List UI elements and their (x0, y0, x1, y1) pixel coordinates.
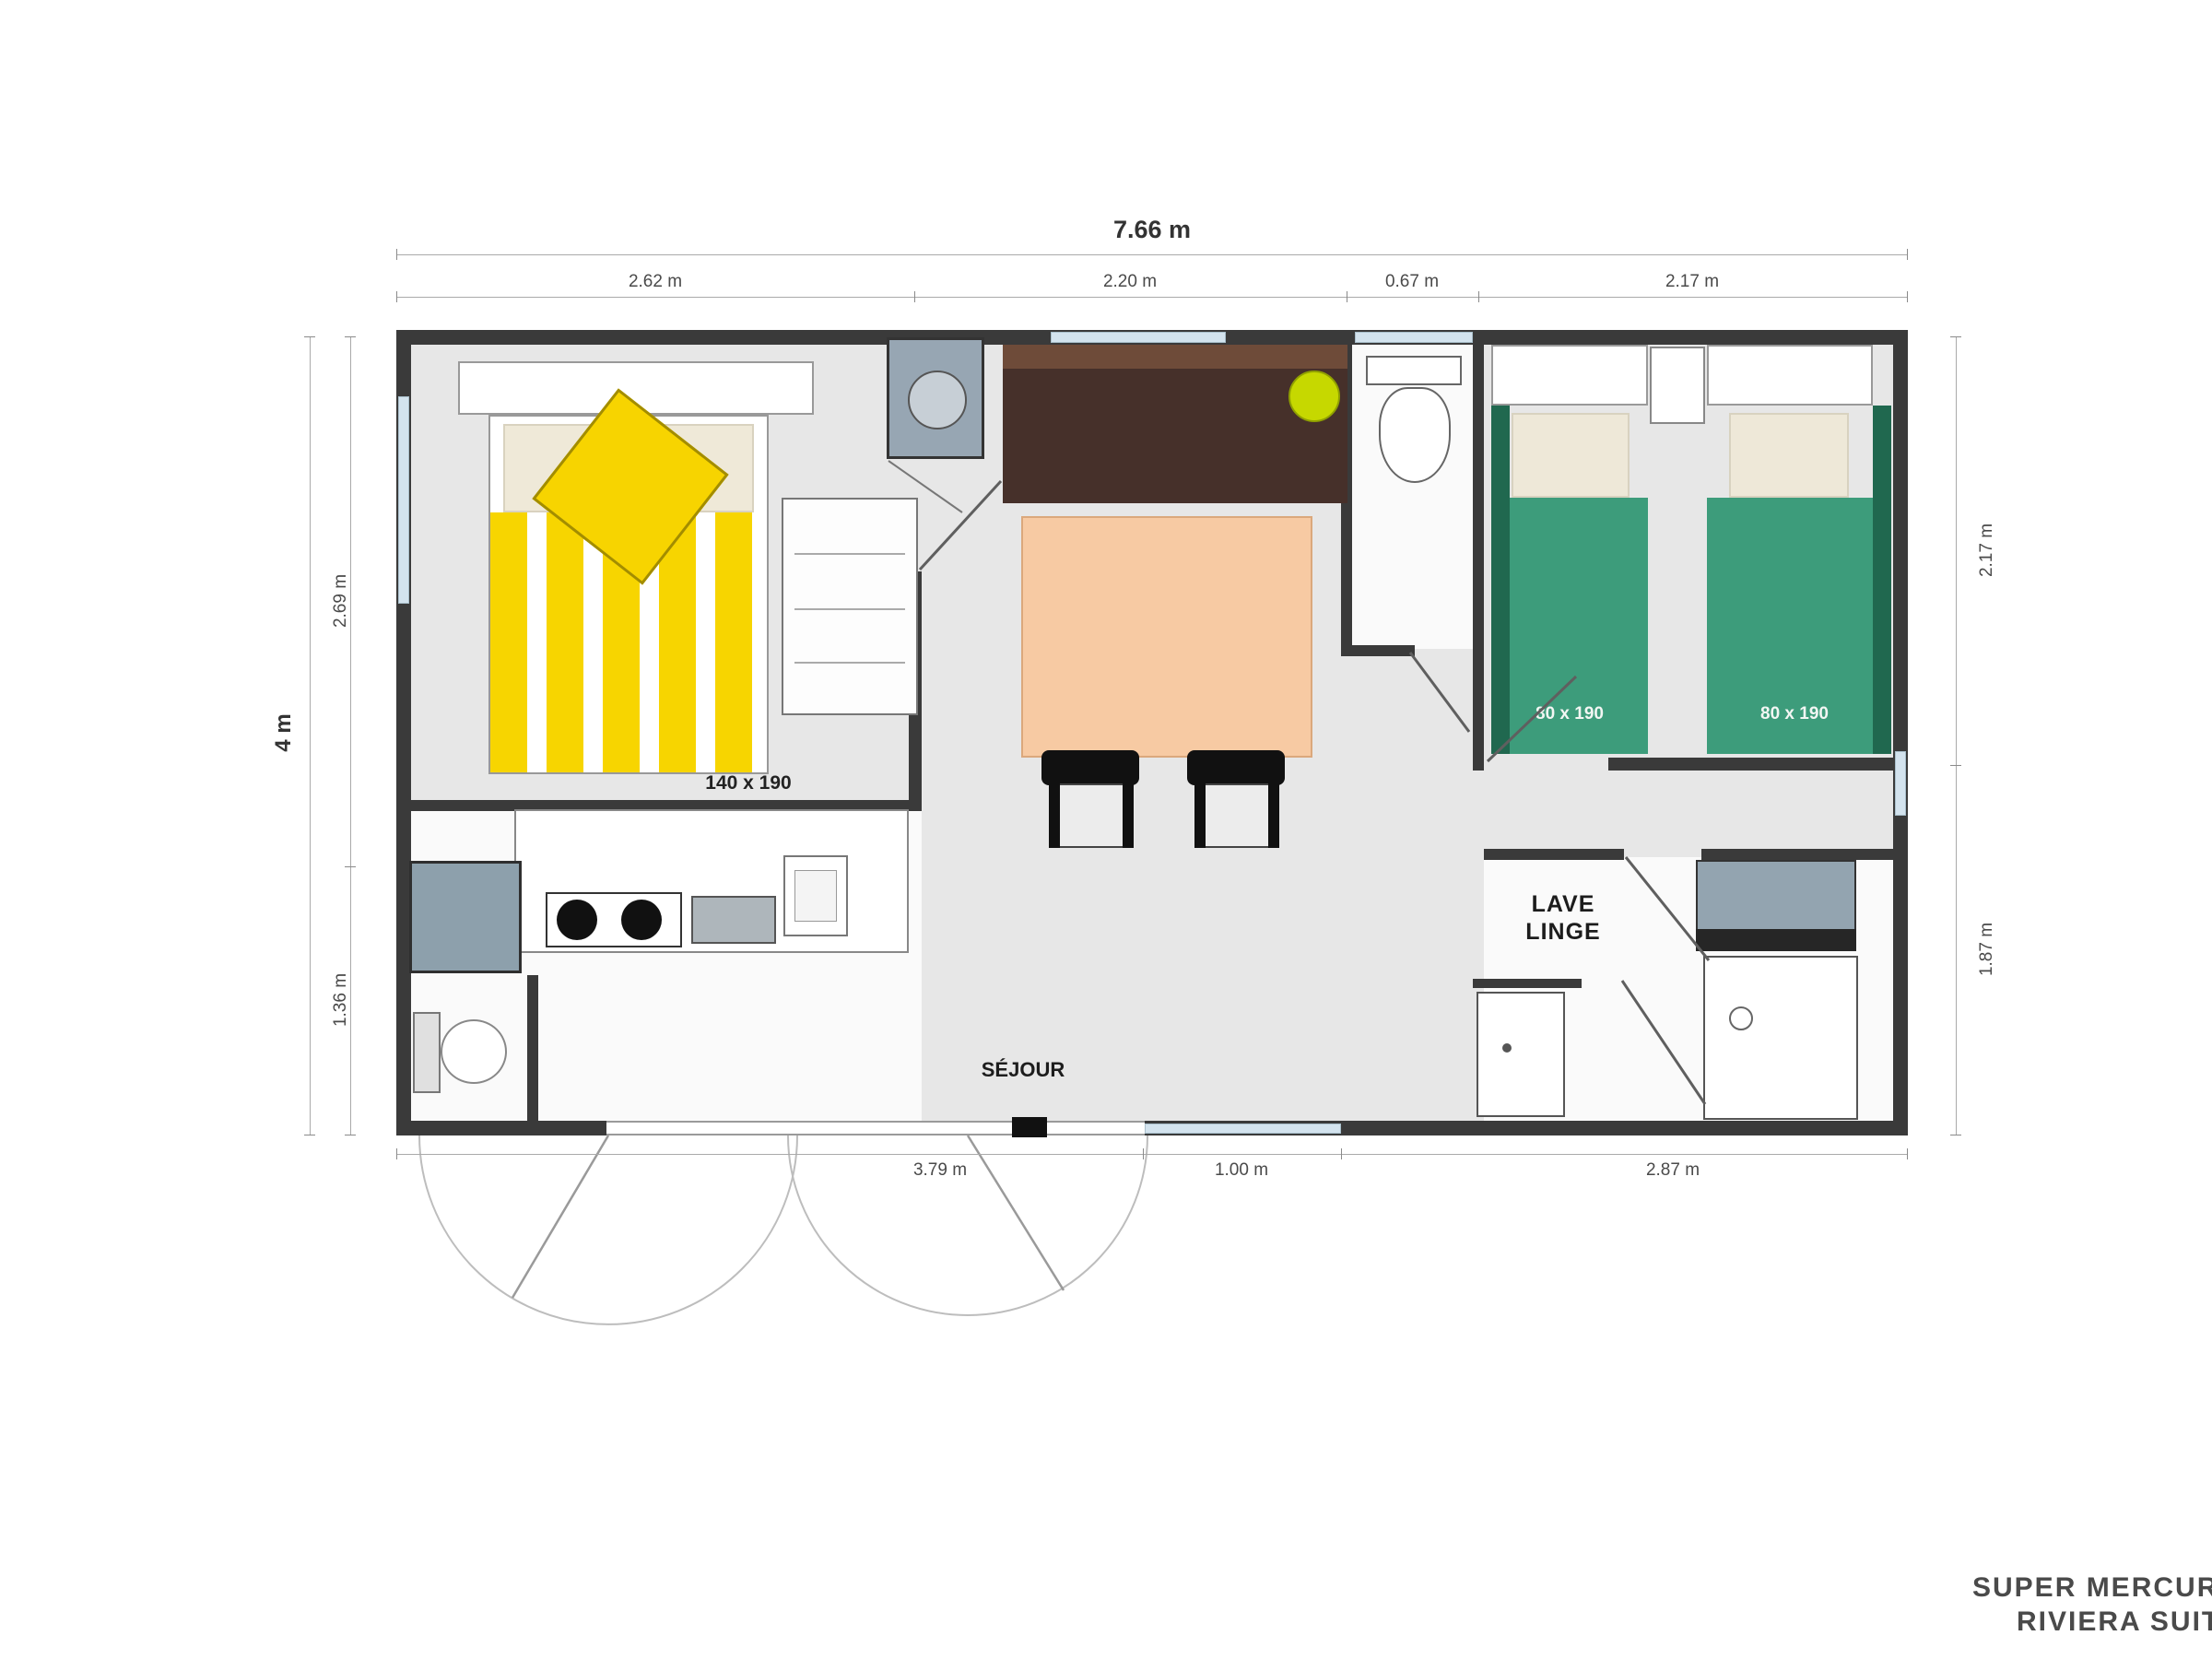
corner-cabinet-chamfer (888, 461, 962, 512)
bedroom2-door-leaf (1488, 677, 1576, 761)
model-signature-line2: RIVIERA SUITE (2017, 1605, 2212, 1639)
dim-tick (396, 1148, 397, 1159)
dim-bottom-segment-2: 1.00 m (1186, 1159, 1297, 1182)
french-door-leaf-left (512, 1135, 608, 1298)
dim-line-bottom-segments (396, 1154, 1908, 1155)
dim-line-left-total (310, 336, 311, 1135)
model-signature-line1: SUPER MERCURE (1972, 1571, 2212, 1605)
dim-right-segment-2: 1.87 m (1976, 894, 1998, 1005)
bathroom-door-leaf (1626, 857, 1709, 960)
dim-total-width: 7.66 m (1060, 216, 1244, 243)
dim-line-right-segments (1956, 336, 1957, 1135)
dim-line-top-total (396, 254, 1908, 255)
dim-tick (396, 249, 397, 260)
dim-tick (1950, 765, 1961, 766)
dim-bottom-segment-3: 2.87 m (1618, 1159, 1728, 1182)
dim-top-segment-3: 0.67 m (1357, 271, 1467, 293)
wc-door-leaf (1410, 653, 1469, 732)
dim-bottom-segment-1: 3.79 m (885, 1159, 995, 1182)
dim-total-height: 4 m (273, 677, 295, 788)
french-door-arc-left (419, 1135, 797, 1324)
floor-plan-canvas: 140 x 190 SÉJOUR 80 x 190 80 x 190 (0, 0, 2212, 1659)
dim-top-segment-4: 2.17 m (1637, 271, 1747, 293)
dim-top-segment-2: 2.20 m (1075, 271, 1185, 293)
dim-tick (304, 1135, 315, 1135)
dim-tick (1143, 1148, 1144, 1159)
model-signature: SUPER MERCURE RIVIERA SUITE (1972, 1571, 2212, 1639)
dim-right-segment-1: 2.17 m (1976, 495, 1998, 606)
shower-door-leaf (1622, 981, 1705, 1104)
dim-tick (345, 336, 356, 337)
dim-line-top-segments (396, 297, 1908, 298)
dim-tick (345, 1135, 356, 1135)
dim-tick (1478, 291, 1479, 302)
dim-tick (914, 291, 915, 302)
dim-tick (345, 866, 356, 867)
door-swing-overlay (0, 0, 2212, 1659)
dim-tick (1347, 291, 1347, 302)
dim-tick (1950, 1135, 1961, 1135)
dim-tick (1341, 1148, 1342, 1159)
dim-left-segment-2: 1.36 m (330, 945, 352, 1055)
dim-tick (396, 291, 397, 302)
dim-left-segment-1: 2.69 m (330, 546, 352, 656)
dim-tick (1907, 291, 1908, 302)
bedroom1-door-leaf (920, 481, 1001, 570)
dim-top-segment-1: 2.62 m (600, 271, 711, 293)
dim-tick (1907, 249, 1908, 260)
dim-tick (1950, 336, 1961, 337)
dim-tick (304, 336, 315, 337)
dim-tick (1907, 1148, 1908, 1159)
